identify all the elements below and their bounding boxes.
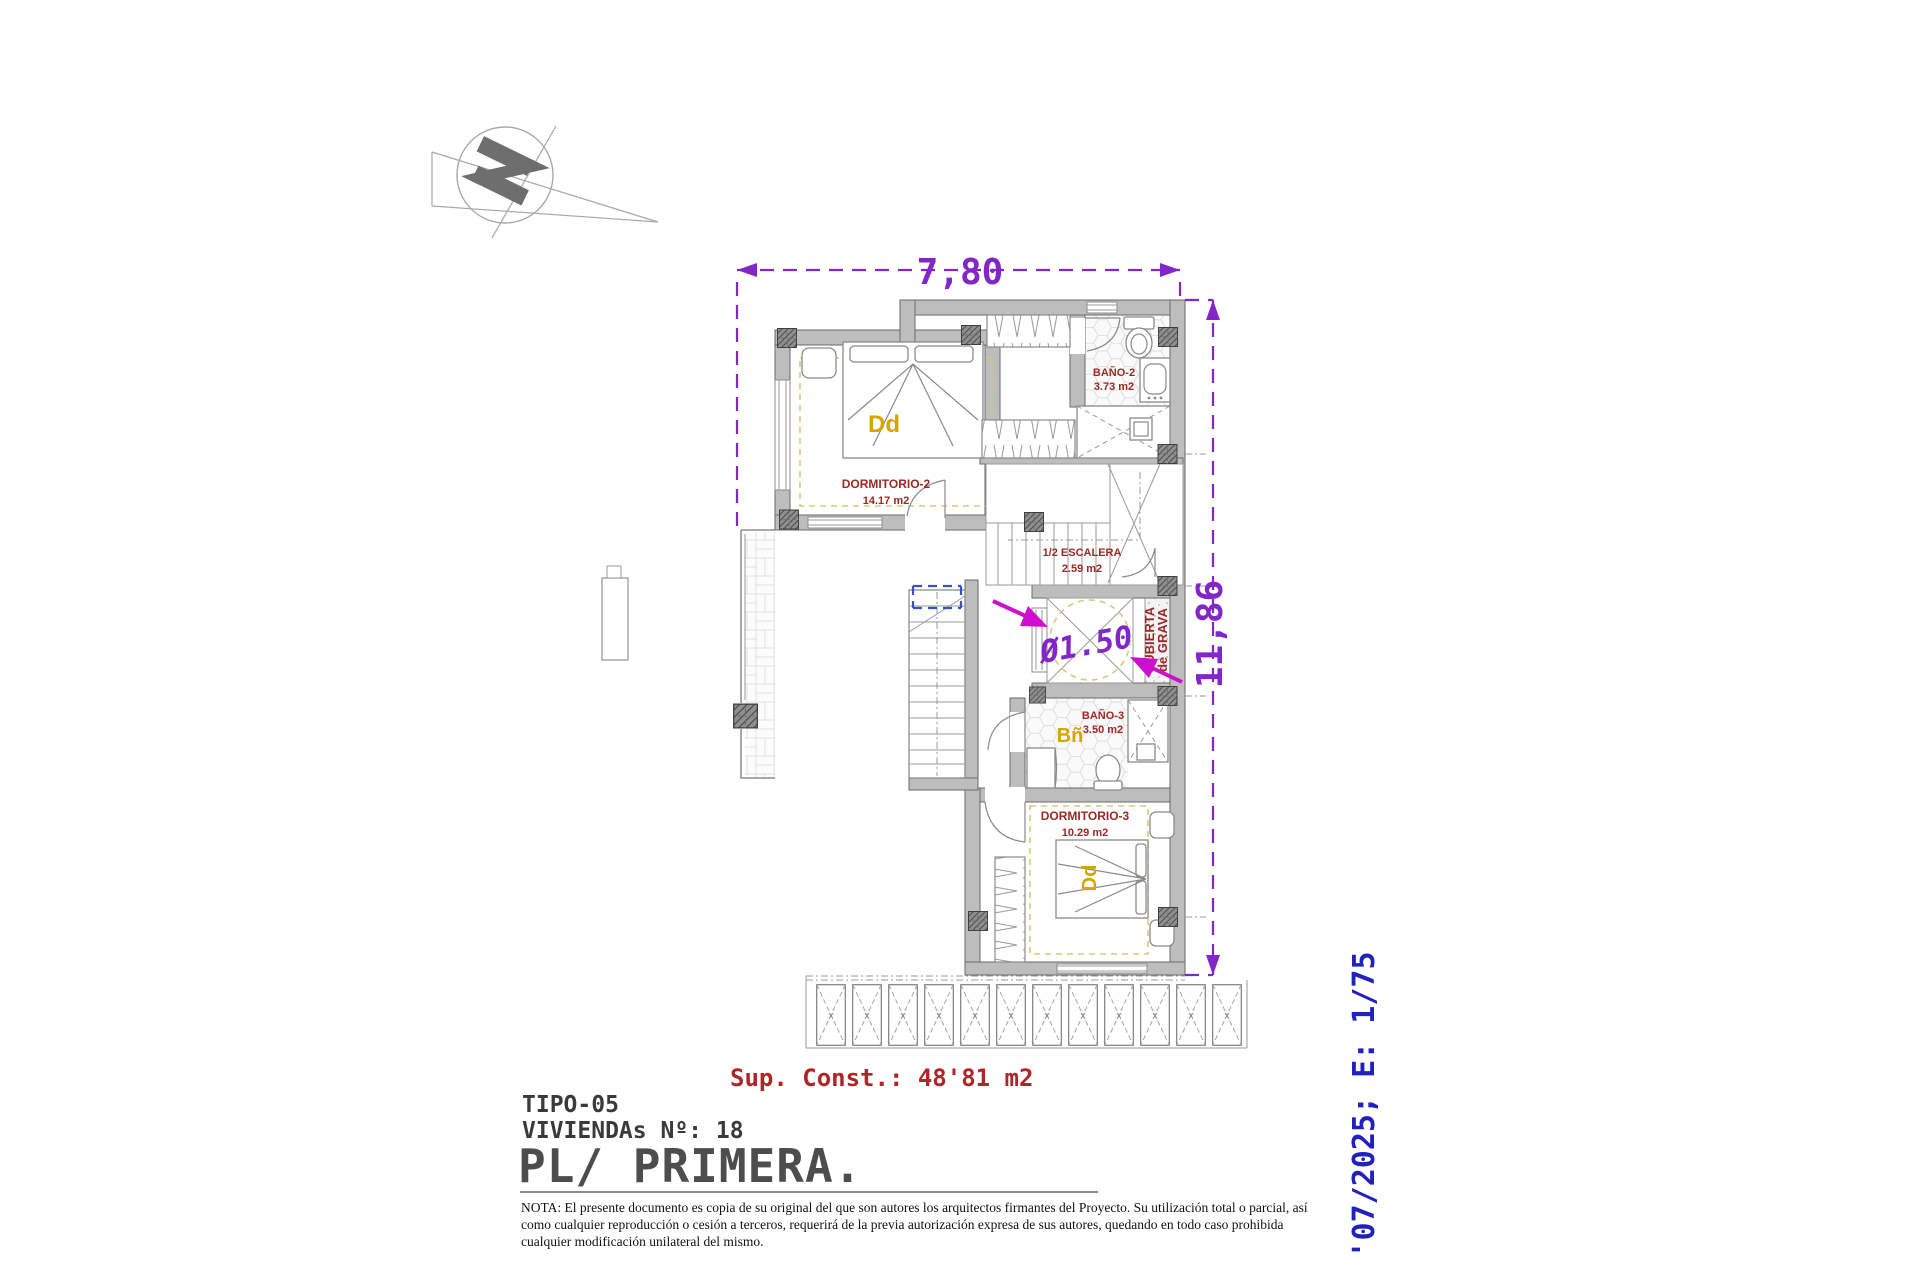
planta-label: PL/ PRIMERA. [518, 1139, 862, 1193]
dim-width-label: 7,80 [917, 252, 1004, 293]
dorm2-area: 14.17 m2 [863, 495, 909, 507]
bano3-vanity [1027, 748, 1057, 788]
note-line3: cualquier modificación unilateral del mi… [521, 1234, 764, 1249]
bano3-toilet [1094, 755, 1122, 790]
window-dorm2-bottom [808, 517, 882, 528]
wardrobe-hall-top [987, 315, 1070, 347]
dorm2-pillow [915, 346, 973, 362]
note-line2: como cualquier reproducción o cesión a t… [521, 1217, 1283, 1232]
stairs-name: 1/2 ESCALERA [1043, 547, 1122, 559]
bano2-toilet [1124, 317, 1154, 358]
floor-plan-drawing: x T. DESCUBIERTA 27.17 m2 [0, 0, 1920, 1280]
north-glyph [461, 135, 549, 210]
legal-note: NOTA: El presente documento es copia de … [521, 1200, 1308, 1249]
dorm2-side-table [802, 348, 836, 378]
floor-plan-page: x T. DESCUBIERTA 27.17 m2 [0, 0, 1920, 1280]
dorm2-bed-tag: Dd [868, 411, 900, 438]
tipo-label: TIPO-05 [522, 1092, 619, 1118]
date-scale-stamp: '07/2025; E: 1/75 [1347, 951, 1382, 1258]
grava-line2: de GRAVA [1155, 607, 1170, 671]
window-dorm3-bottom [1057, 964, 1147, 973]
exterior-pilaster-step [607, 566, 621, 578]
stairs-area: 2.59 m2 [1062, 563, 1102, 575]
dim-height-label: 11,86 [1190, 580, 1231, 688]
bano3-name: BAÑO-3 [1082, 709, 1124, 722]
deck-railing [806, 976, 1247, 1048]
lift-shaft: Ø1.50 [1032, 598, 1136, 683]
sup-const-label: Sup. Const.: 48'81 m2 [730, 1064, 1033, 1092]
dorm3-pillow [1136, 881, 1146, 914]
staircase: 1/2 ESCALERA 2.59 m2 [986, 464, 1183, 585]
staircase-lower [909, 586, 965, 778]
dorm3-bed [1056, 840, 1148, 918]
dorm2-name: DORMITORIO-2 [842, 477, 931, 491]
north-arrow [432, 126, 658, 238]
dorm3-name: DORMITORIO-3 [1041, 809, 1130, 823]
window-bano2-top [1087, 302, 1117, 313]
bano2-area: 3.73 m2 [1094, 381, 1134, 393]
dorm3-side-table [1150, 812, 1174, 838]
window-dorm2-left [775, 380, 790, 490]
bano3-shower [1128, 700, 1168, 762]
dorm3-area: 10.29 m2 [1062, 827, 1108, 839]
wardrobe-hall-mid [982, 420, 1075, 458]
dorm3-bed-tag: Dd [1079, 865, 1101, 892]
wardrobe-dorm3 [995, 857, 1025, 962]
bano2-sink [1140, 358, 1170, 402]
note-line1: NOTA: El presente documento es copia de … [521, 1200, 1308, 1215]
bano2-name: BAÑO-2 [1093, 366, 1135, 379]
dorm3-pillow [1136, 844, 1146, 877]
dorm2-pillow [850, 346, 908, 362]
bano2-shower [1077, 406, 1170, 458]
exterior-pilaster [602, 578, 628, 660]
bano3-tag: Bñ [1057, 725, 1084, 747]
bano3-area: 3.50 m2 [1083, 724, 1123, 736]
